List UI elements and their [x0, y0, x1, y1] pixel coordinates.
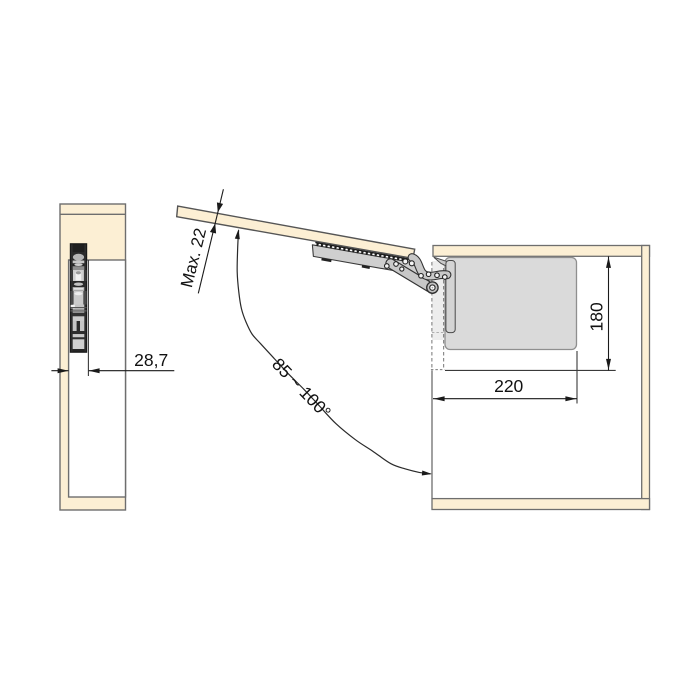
svg-text:Max. 22: Max. 22 — [177, 226, 210, 289]
svg-text:180: 180 — [587, 302, 607, 331]
svg-text:28,7: 28,7 — [134, 350, 168, 370]
svg-text:220: 220 — [494, 376, 523, 396]
svg-text:85 ~ 100°: 85 ~ 100° — [268, 354, 335, 422]
